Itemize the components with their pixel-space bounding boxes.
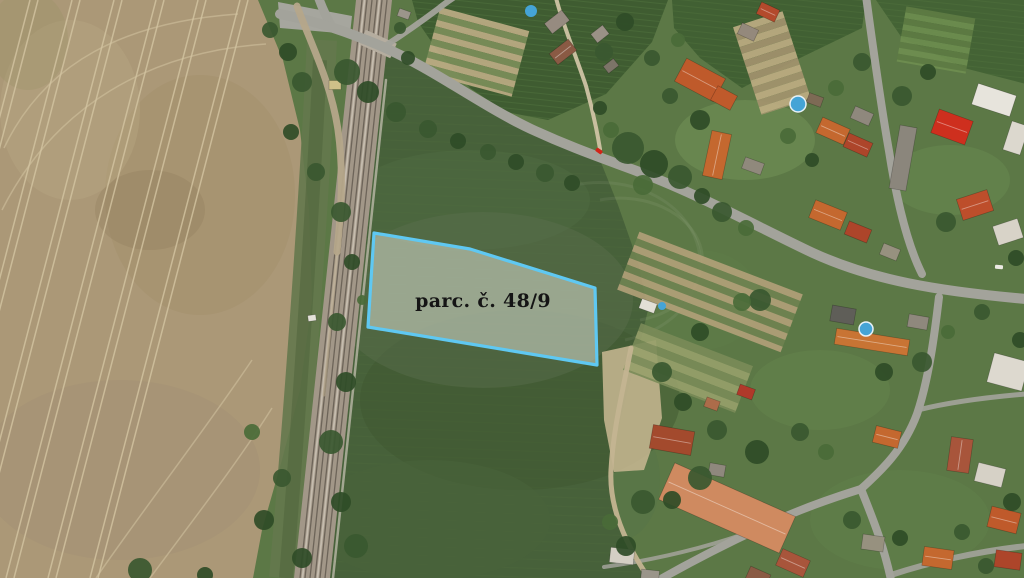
- plowed-field: [0, 0, 312, 578]
- aerial-map[interactable]: parc. č. 48/9: [0, 0, 1024, 578]
- aerial-map-stage[interactable]: parc. č. 48/9: [0, 0, 1024, 578]
- parcel-label: parc. č. 48/9: [415, 290, 551, 312]
